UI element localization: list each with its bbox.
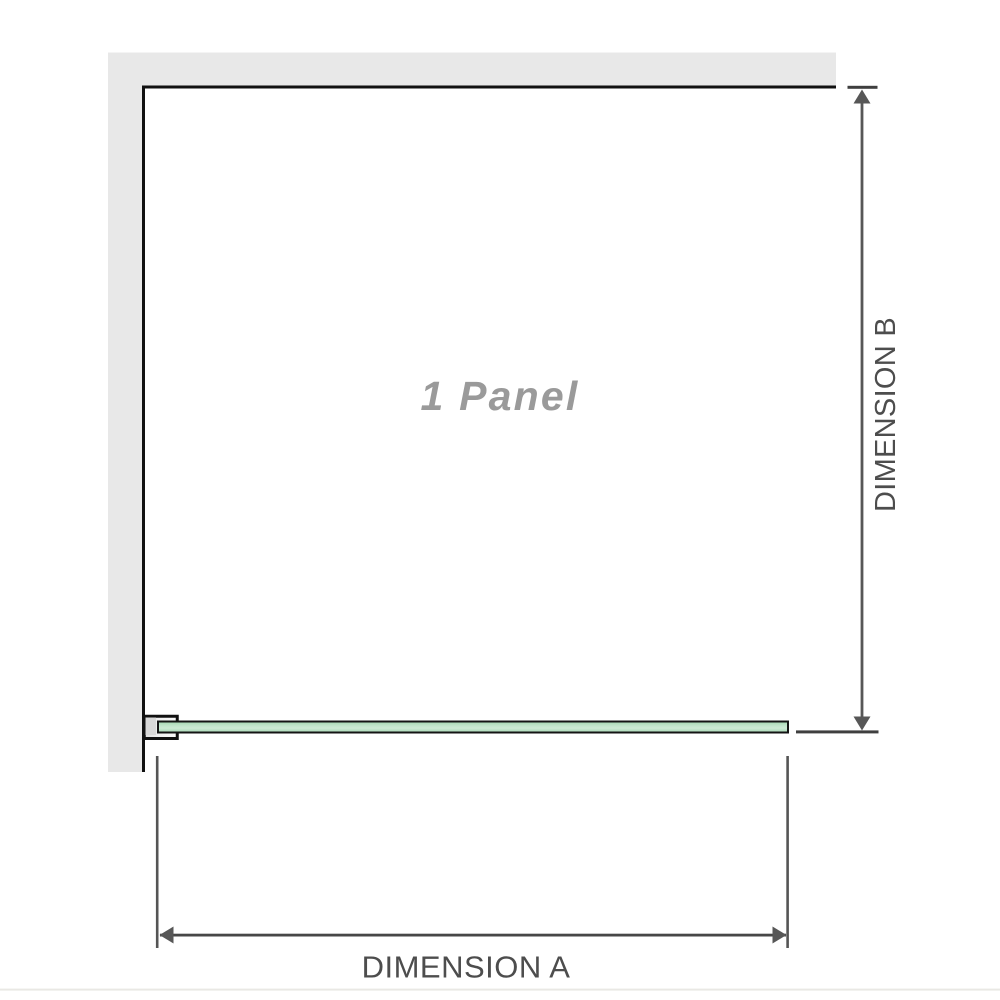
svg-text:DIMENSION B: DIMENSION B — [870, 317, 902, 512]
svg-text:DIMENSION A: DIMENSION A — [362, 950, 571, 985]
svg-text:1 Panel: 1 Panel — [421, 373, 580, 419]
